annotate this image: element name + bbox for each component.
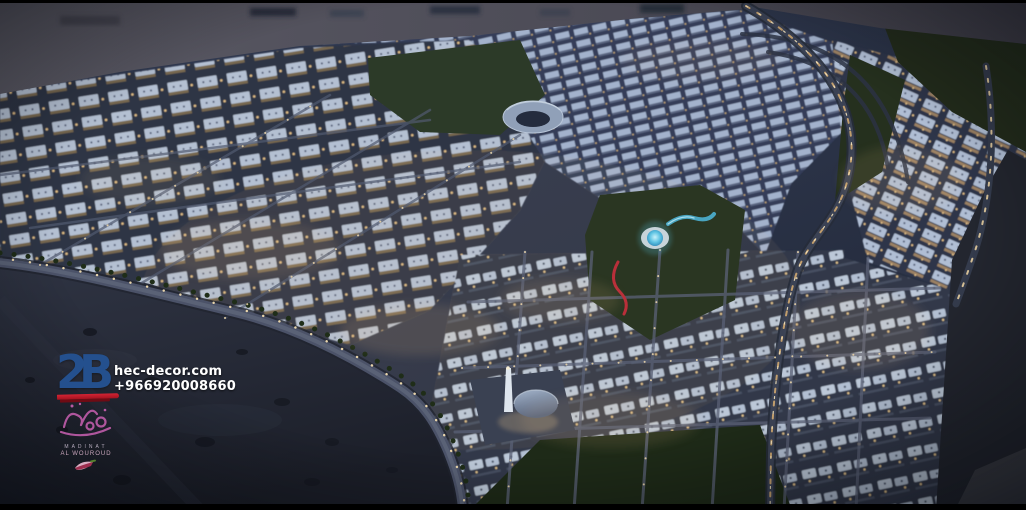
video-frame: 2B hec-decor.com +966920008660 MADINAT A… <box>0 0 1026 510</box>
vignette <box>0 0 1026 510</box>
aerial-city-render <box>0 0 1026 510</box>
